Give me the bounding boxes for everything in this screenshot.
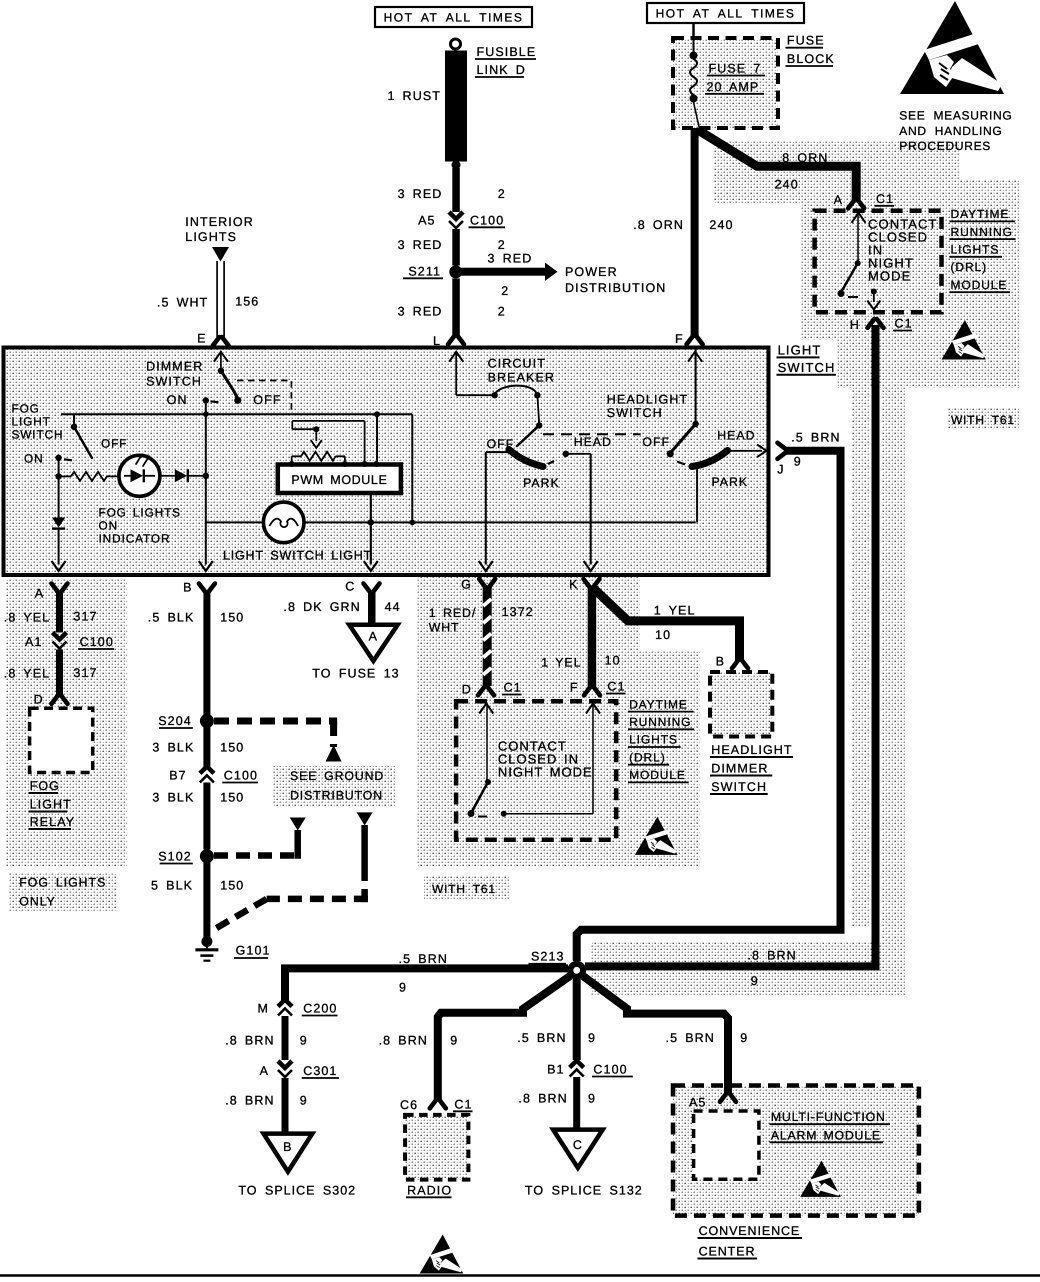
- svg-text:.5 WHT: .5 WHT: [157, 296, 208, 310]
- svg-text:MULTI-FUNCTION: MULTI-FUNCTION: [771, 1110, 886, 1124]
- svg-text:240: 240: [709, 218, 733, 232]
- svg-text:D: D: [462, 683, 472, 697]
- svg-text:(DRL): (DRL): [629, 750, 666, 764]
- svg-text:FUSIBLE: FUSIBLE: [477, 45, 537, 59]
- svg-text:150: 150: [220, 879, 244, 893]
- svg-text:G101: G101: [236, 944, 271, 958]
- svg-text:A5: A5: [689, 1096, 706, 1110]
- svg-text:SWITCH: SWITCH: [12, 428, 64, 442]
- svg-text:HOT AT ALL TIMES: HOT AT ALL TIMES: [656, 7, 796, 21]
- svg-text:A: A: [369, 630, 378, 644]
- svg-text:RADIO: RADIO: [407, 1183, 452, 1197]
- svg-text:MODULE: MODULE: [629, 768, 686, 782]
- svg-text:C100: C100: [593, 1063, 627, 1077]
- svg-text:B: B: [183, 581, 192, 595]
- svg-text:3 RED: 3 RED: [488, 252, 533, 266]
- svg-text:317: 317: [73, 666, 97, 680]
- svg-text:156: 156: [235, 295, 259, 309]
- svg-text:FUSE 7: FUSE 7: [709, 62, 762, 76]
- svg-text:ALARM MODULE: ALARM MODULE: [771, 1128, 881, 1142]
- svg-text:LINK D: LINK D: [477, 63, 526, 77]
- svg-text:DAYTIME: DAYTIME: [629, 697, 688, 711]
- svg-text:.8 BRN: .8 BRN: [225, 1094, 274, 1108]
- svg-text:SWITCH: SWITCH: [778, 360, 836, 375]
- svg-text:D: D: [34, 693, 44, 707]
- svg-text:.5 BLK: .5 BLK: [148, 611, 195, 625]
- svg-text:S204: S204: [158, 714, 192, 728]
- svg-text:RELAY: RELAY: [30, 815, 76, 829]
- svg-text:SEE MEASURING: SEE MEASURING: [899, 108, 1012, 122]
- svg-text:FOG LIGHTS: FOG LIGHTS: [99, 506, 181, 520]
- svg-text:10: 10: [605, 654, 621, 668]
- svg-text:9: 9: [751, 974, 759, 988]
- svg-text:CENTER: CENTER: [699, 1245, 756, 1259]
- svg-text:PROCEDURES: PROCEDURES: [899, 139, 991, 153]
- svg-text:9: 9: [588, 1092, 596, 1106]
- svg-text:HEAD: HEAD: [574, 435, 612, 449]
- svg-text:C301: C301: [303, 1064, 337, 1078]
- svg-text:LIGHT: LIGHT: [30, 798, 72, 812]
- svg-text:3 BLK: 3 BLK: [152, 791, 194, 805]
- svg-text:LIGHTS: LIGHTS: [629, 733, 678, 747]
- svg-text:.8 BRN: .8 BRN: [518, 1092, 567, 1106]
- svg-text:DAYTIME: DAYTIME: [951, 207, 1010, 221]
- svg-text:TO SPLICE S132: TO SPLICE S132: [525, 1183, 643, 1197]
- svg-text:LIGHT: LIGHT: [778, 343, 822, 358]
- svg-text:OFF: OFF: [253, 393, 281, 407]
- svg-text:A: A: [260, 1064, 269, 1078]
- svg-text:C: C: [573, 1138, 583, 1152]
- svg-text:NIGHT MODE: NIGHT MODE: [498, 765, 593, 780]
- svg-text:DIMMER: DIMMER: [711, 762, 768, 776]
- svg-text:1 RUST: 1 RUST: [387, 89, 441, 103]
- svg-text:M: M: [257, 1002, 269, 1016]
- svg-text:DISTRIBUTION: DISTRIBUTION: [565, 281, 666, 295]
- svg-text:9: 9: [740, 1031, 748, 1045]
- svg-text:A1: A1: [25, 635, 43, 649]
- svg-text:.5 BRN: .5 BRN: [666, 1031, 715, 1045]
- svg-text:DIMMER: DIMMER: [146, 360, 203, 374]
- svg-text:WHT: WHT: [429, 621, 460, 635]
- svg-text:WITH T61: WITH T61: [432, 882, 496, 896]
- svg-text:LIGHTS: LIGHTS: [951, 243, 1000, 257]
- svg-text:SWITCH: SWITCH: [607, 406, 663, 420]
- svg-text:HEAD: HEAD: [717, 429, 755, 443]
- svg-text:LIGHT: LIGHT: [12, 414, 51, 428]
- svg-text:2: 2: [501, 284, 509, 298]
- svg-text:LIGHTS: LIGHTS: [185, 230, 237, 244]
- svg-text:RUNNING: RUNNING: [629, 715, 691, 729]
- svg-text:WITH T61: WITH T61: [951, 413, 1015, 427]
- svg-text:OFF: OFF: [642, 435, 670, 449]
- svg-text:.5 BRN: .5 BRN: [399, 952, 448, 966]
- svg-text:1 RED/: 1 RED/: [429, 606, 477, 620]
- svg-text:150: 150: [220, 611, 244, 625]
- svg-text:3 BLK: 3 BLK: [152, 741, 194, 755]
- svg-text:3 RED: 3 RED: [398, 187, 443, 201]
- svg-text:9: 9: [588, 1031, 596, 1045]
- svg-text:PWM MODULE: PWM MODULE: [291, 473, 387, 487]
- svg-text:HOT AT ALL TIMES: HOT AT ALL TIMES: [384, 11, 524, 25]
- svg-text:C1: C1: [895, 317, 913, 331]
- svg-text:INDICATOR: INDICATOR: [99, 532, 171, 546]
- svg-text:DISTRIBUTON: DISTRIBUTON: [290, 788, 383, 802]
- svg-text:.8 BRN: .8 BRN: [379, 1034, 428, 1048]
- svg-text:BREAKER: BREAKER: [488, 370, 555, 384]
- svg-text:PARK: PARK: [712, 475, 749, 489]
- svg-text:PARK: PARK: [523, 476, 560, 490]
- svg-text:.5 BRN: .5 BRN: [517, 1031, 566, 1045]
- svg-text:CIRCUIT: CIRCUIT: [488, 357, 546, 371]
- svg-text:.5 BRN: .5 BRN: [791, 430, 840, 444]
- svg-text:20 AMP: 20 AMP: [707, 80, 760, 94]
- svg-text:9: 9: [300, 1094, 308, 1108]
- svg-text:J: J: [777, 462, 784, 476]
- svg-text:1 YEL: 1 YEL: [541, 656, 581, 670]
- svg-text:AND HANDLING: AND HANDLING: [899, 124, 1002, 138]
- svg-text:MODULE: MODULE: [951, 278, 1008, 292]
- svg-text:G: G: [461, 578, 472, 592]
- svg-text:K: K: [569, 578, 578, 592]
- svg-text:FOG: FOG: [12, 401, 40, 415]
- svg-text:.8 YEL: .8 YEL: [4, 667, 50, 681]
- svg-text:C200: C200: [303, 1002, 337, 1016]
- svg-text:H: H: [850, 318, 860, 332]
- svg-text:SWITCH: SWITCH: [711, 780, 767, 794]
- svg-text:.8 BRN: .8 BRN: [225, 1034, 274, 1048]
- svg-text:ON: ON: [24, 452, 44, 466]
- svg-text:HEADLIGHT: HEADLIGHT: [711, 743, 792, 757]
- svg-text:C1: C1: [504, 681, 522, 695]
- svg-text:F: F: [675, 332, 684, 346]
- svg-text:.8 YEL: .8 YEL: [4, 611, 50, 625]
- svg-text:3 RED: 3 RED: [398, 238, 443, 252]
- svg-text:.8 ORN: .8 ORN: [633, 218, 684, 232]
- svg-text:C100: C100: [224, 769, 258, 783]
- svg-text:S102: S102: [158, 850, 192, 864]
- svg-text:317: 317: [73, 610, 97, 624]
- svg-text:A: A: [35, 587, 44, 601]
- svg-text:LIGHT SWITCH LIGHT: LIGHT SWITCH LIGHT: [223, 549, 372, 563]
- svg-text:B: B: [716, 655, 725, 669]
- svg-text:F: F: [570, 681, 579, 695]
- svg-text:RUNNING: RUNNING: [951, 225, 1013, 239]
- svg-text:ON: ON: [99, 519, 119, 533]
- svg-text:E: E: [197, 332, 206, 346]
- svg-text:C100: C100: [470, 214, 504, 228]
- svg-text:2: 2: [498, 305, 506, 319]
- svg-text:ONLY: ONLY: [19, 895, 56, 909]
- svg-text:OFF: OFF: [101, 436, 127, 450]
- svg-text:C6: C6: [400, 1098, 418, 1112]
- svg-text:S211: S211: [408, 265, 441, 279]
- svg-text:CONVENIENCE: CONVENIENCE: [699, 1224, 801, 1238]
- svg-text:.8 ORN: .8 ORN: [778, 151, 829, 165]
- svg-text:C1: C1: [607, 680, 625, 694]
- svg-text:9: 9: [399, 981, 407, 995]
- svg-text:150: 150: [220, 791, 244, 805]
- svg-text:FOG: FOG: [30, 779, 60, 793]
- svg-text:1 YEL: 1 YEL: [654, 604, 696, 618]
- svg-text:INTERIOR: INTERIOR: [185, 215, 254, 229]
- svg-text:ON: ON: [167, 393, 188, 407]
- svg-text:9: 9: [794, 455, 802, 469]
- svg-text:3 RED: 3 RED: [398, 305, 443, 319]
- svg-text:B: B: [283, 1140, 292, 1154]
- svg-text:TO SPLICE S302: TO SPLICE S302: [238, 1183, 356, 1197]
- svg-text:S213: S213: [531, 950, 565, 964]
- svg-text:.8 BRN: .8 BRN: [747, 949, 796, 963]
- svg-text:10: 10: [655, 628, 671, 642]
- svg-text:BLOCK: BLOCK: [787, 52, 835, 66]
- svg-text:B1: B1: [547, 1063, 565, 1077]
- svg-text:C1: C1: [876, 192, 894, 206]
- svg-text:.8 DK GRN: .8 DK GRN: [283, 600, 360, 614]
- svg-text:B7: B7: [169, 769, 187, 783]
- svg-text:9: 9: [450, 1034, 458, 1048]
- svg-text:C100: C100: [80, 635, 114, 649]
- svg-text:FOG LIGHTS: FOG LIGHTS: [19, 876, 106, 890]
- svg-text:2: 2: [498, 187, 506, 201]
- svg-text:C: C: [345, 580, 355, 594]
- svg-text:44: 44: [385, 600, 401, 614]
- svg-text:2: 2: [498, 238, 506, 252]
- svg-text:SWITCH: SWITCH: [146, 374, 202, 388]
- svg-text:TO FUSE 13: TO FUSE 13: [312, 667, 399, 681]
- svg-text:C1: C1: [454, 1097, 472, 1111]
- svg-text:SEE GROUND: SEE GROUND: [290, 769, 384, 783]
- svg-text:5 BLK: 5 BLK: [151, 879, 193, 893]
- svg-text:MODE: MODE: [868, 269, 911, 284]
- svg-text:HEADLIGHT: HEADLIGHT: [607, 392, 688, 406]
- svg-text:150: 150: [220, 741, 244, 755]
- svg-text:A: A: [834, 193, 843, 207]
- svg-text:(DRL): (DRL): [951, 260, 988, 274]
- svg-text:POWER: POWER: [565, 265, 618, 279]
- svg-text:FUSE: FUSE: [787, 34, 825, 48]
- svg-text:240: 240: [775, 178, 799, 192]
- svg-text:1372: 1372: [502, 605, 534, 619]
- svg-text:9: 9: [300, 1034, 308, 1048]
- svg-text:A5: A5: [418, 214, 436, 228]
